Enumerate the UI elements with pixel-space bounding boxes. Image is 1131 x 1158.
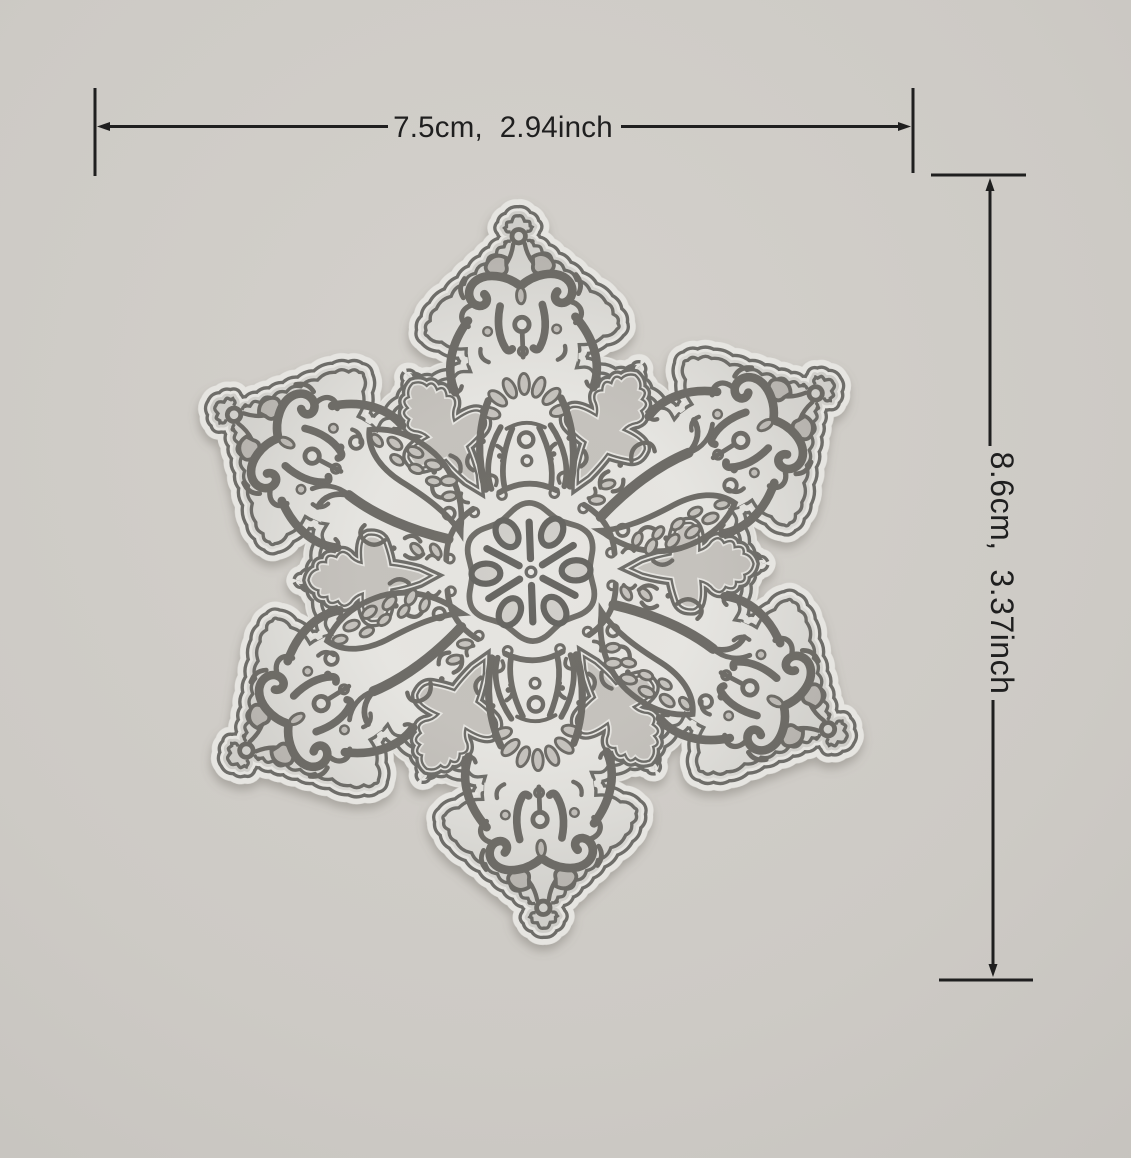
svg-text:7.5cm, 2.94inch: 7.5cm, 2.94inch <box>393 111 613 144</box>
svg-text:8.6cm, 3.37inch: 8.6cm, 3.37inch <box>984 452 1020 695</box>
